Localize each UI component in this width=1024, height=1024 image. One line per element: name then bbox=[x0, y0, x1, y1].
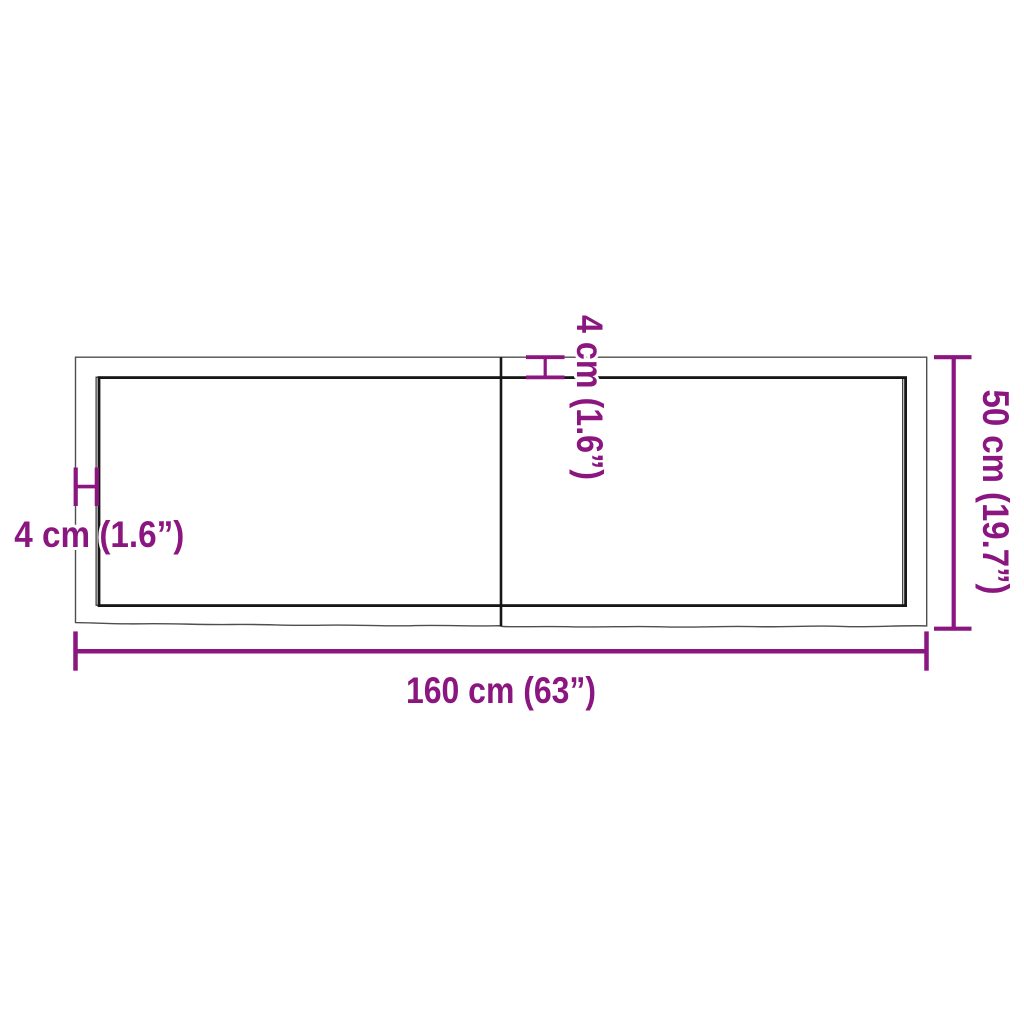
svg-text:4 cm (1.6”): 4 cm (1.6”) bbox=[569, 315, 611, 480]
svg-text:50 cm (19.7”): 50 cm (19.7”) bbox=[975, 390, 1017, 595]
svg-text:4 cm (1.6”): 4 cm (1.6”) bbox=[14, 513, 184, 555]
svg-text:160 cm (63”): 160 cm (63”) bbox=[406, 669, 596, 711]
